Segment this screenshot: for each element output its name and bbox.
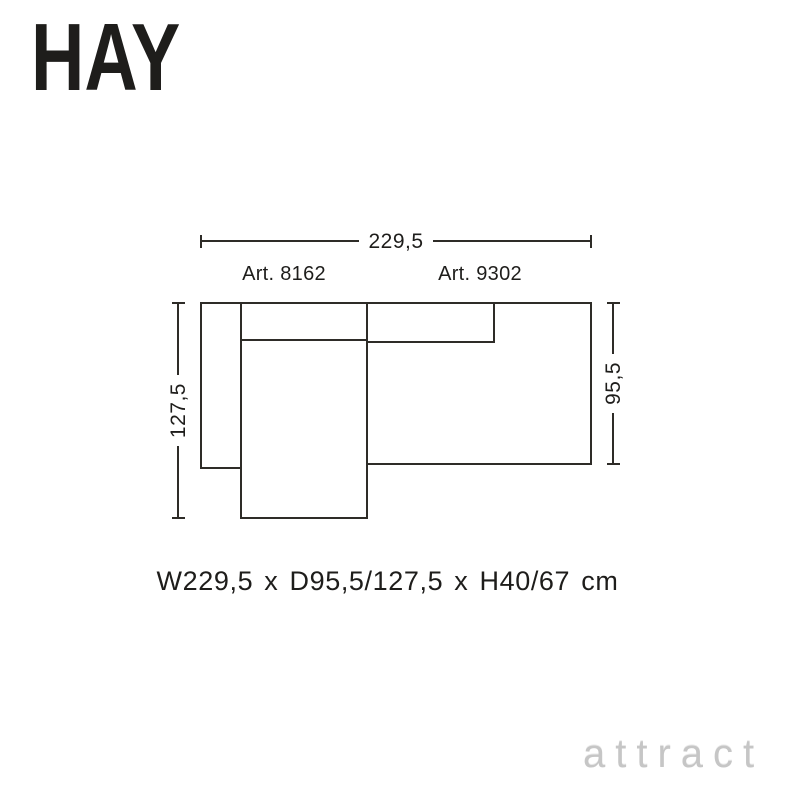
sofa-left-armrest-outline <box>200 302 240 469</box>
dimension-tick-right <box>590 235 592 248</box>
dimension-line-segment <box>433 240 590 242</box>
sofa-right-module-outline <box>368 302 592 465</box>
width-dimension-line: 229,5 <box>200 229 592 253</box>
left-depth-dimension-value: 127,5 <box>168 375 189 446</box>
right-depth-dimension-value: 95,5 <box>603 354 624 413</box>
sofa-chaise-module-outline <box>240 302 368 519</box>
width-dimension-value: 229,5 <box>359 231 432 252</box>
dimension-line-segment <box>612 304 614 354</box>
left-depth-dimension-line: 127,5 <box>170 302 186 519</box>
dimension-line-segment <box>177 446 179 517</box>
right-depth-dimension-line: 95,5 <box>605 302 621 465</box>
dimensions-summary-text: W229,5 x D95,5/127,5 x H40/67 cm <box>0 566 775 597</box>
dimension-line-segment <box>202 240 359 242</box>
dimension-line-segment <box>177 304 179 375</box>
dimension-line-segment <box>612 413 614 463</box>
right-backrest-front-line <box>368 341 495 343</box>
module-article-label-left: Art. 8162 <box>200 263 368 285</box>
product-dimension-page: HAY 229,5 Art. 8162 Art. 9302 127,5 95,5… <box>0 0 800 800</box>
dimension-tick-bottom <box>172 517 185 519</box>
attract-watermark: attract <box>583 734 764 774</box>
module-article-label-right: Art. 9302 <box>368 263 592 285</box>
chaise-backrest-front-line <box>242 339 366 341</box>
right-backrest-end-line <box>493 304 495 343</box>
hay-brand-logo: HAY <box>31 10 180 106</box>
dimension-tick-bottom <box>607 463 620 465</box>
